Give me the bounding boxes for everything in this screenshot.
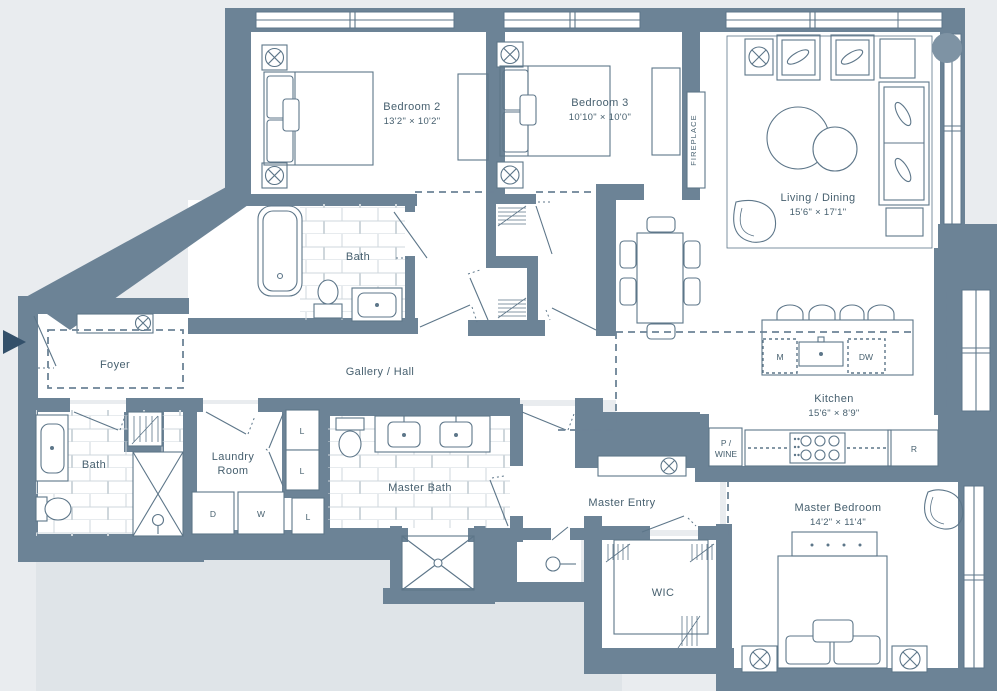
master-entry-label: Master Entry: [588, 497, 655, 509]
kitchen-side-window: [962, 290, 990, 411]
bathtub-icon: [258, 206, 302, 296]
master-bath-label: Master Bath: [388, 482, 452, 494]
pantry-wine-label-2: WINE: [715, 449, 738, 459]
bedroom3-label: Bedroom 3: [571, 97, 628, 109]
toilet-icon: [336, 418, 364, 430]
kitchen-island: [762, 320, 913, 375]
dishwasher-label: DW: [859, 352, 873, 362]
column: [932, 33, 962, 63]
kitchen-label: Kitchen: [814, 393, 854, 405]
bedroom2-label: Bedroom 2: [383, 101, 440, 113]
cushion-icon: [283, 99, 299, 131]
corner-window: [898, 12, 942, 28]
bedroom2-window: [256, 12, 454, 28]
drain-icon: [434, 559, 442, 567]
dining-table-icon: [637, 233, 683, 323]
master-bedroom-window: [964, 486, 984, 668]
pantry-wine-label-1: P /: [721, 438, 732, 448]
linen-label: L: [306, 512, 311, 522]
fireplace-label: FIREPLACE: [689, 114, 698, 166]
refrigerator-label: R: [911, 444, 917, 454]
linen-label: L: [300, 426, 305, 436]
washer-label: W: [257, 509, 265, 519]
shower-control-icon: [546, 557, 560, 571]
cushion-icon: [520, 95, 536, 125]
microwave-label: M: [776, 352, 783, 362]
living-window: [726, 12, 900, 28]
laundry-label-1: Laundry: [212, 451, 255, 463]
floor-plan: Bedroom 2 13'2" × 10'2" Bedroom 3 10'10"…: [0, 0, 997, 691]
bedroom2-dims: 13'2" × 10'2": [384, 116, 441, 127]
master-bedroom-label: Master Bedroom: [795, 502, 882, 514]
toilet-icon: [314, 304, 342, 318]
living-dining-dims: 15'6" × 17'1": [790, 207, 847, 218]
bedroom3-dims: 10'10" × 10'0": [569, 112, 631, 123]
master-bedroom-dims: 14'2" × 11'4": [810, 517, 866, 528]
dryer-label: D: [210, 509, 216, 519]
kitchen-dims: 15'6" × 8'9": [808, 408, 859, 419]
drain-icon: [153, 515, 164, 526]
floor-plan-svg: Bedroom 2 13'2" × 10'2" Bedroom 3 10'10"…: [0, 0, 997, 691]
bedroom3-window: [504, 12, 640, 28]
living-dining-label: Living / Dining: [780, 192, 855, 204]
foyer-label: Foyer: [100, 359, 130, 371]
linen-label: L: [300, 466, 305, 476]
wic-label: WIC: [652, 587, 675, 599]
laundry-label-2: Room: [218, 465, 249, 477]
bath-lower-label: Bath: [82, 459, 106, 471]
coffee-table-icon: [813, 127, 857, 171]
cushion-icon: [813, 620, 853, 642]
headboard-icon: [792, 532, 877, 556]
gallery-hall-label: Gallery / Hall: [346, 366, 415, 378]
bath-upper-label: Bath: [346, 251, 370, 263]
